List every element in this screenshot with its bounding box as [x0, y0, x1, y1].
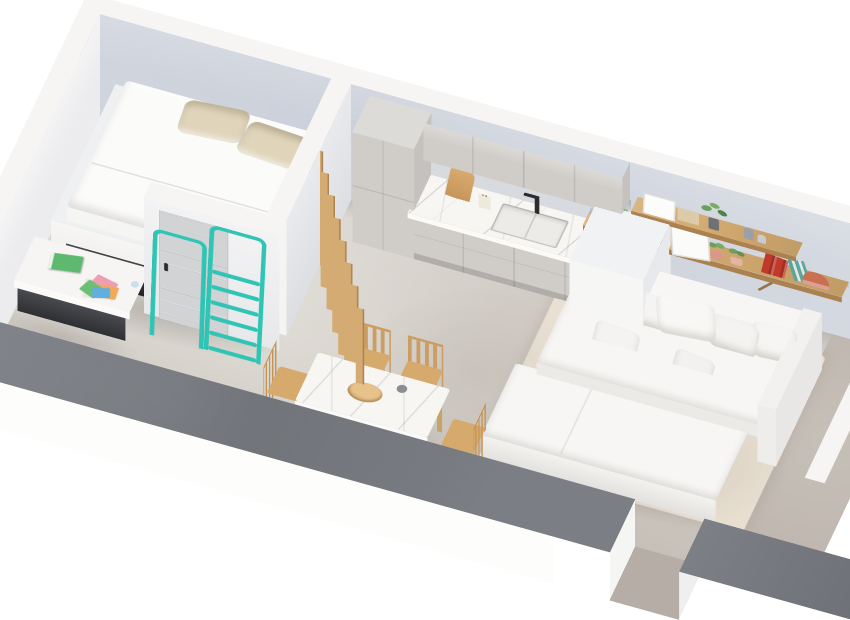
tall-cabinet-front [352, 132, 414, 259]
ladder-rung [211, 285, 259, 302]
mattress-crease [560, 388, 593, 455]
ladder-rung [209, 330, 257, 347]
ladder-rung [210, 315, 258, 332]
ladder-safety-hoop [149, 228, 207, 353]
apartment-render [0, 0, 850, 620]
plant-leaf [716, 209, 728, 218]
paper-blue [92, 288, 110, 299]
sofa-arm-front [757, 405, 775, 467]
sink-divider [524, 214, 537, 238]
ladder-rung [212, 269, 260, 286]
loft-ladder [204, 224, 267, 368]
plant-leaf [715, 242, 726, 250]
utensil [485, 192, 487, 197]
utensil [482, 190, 484, 196]
plant-leaf [735, 250, 745, 258]
ladder-rung [211, 300, 259, 317]
